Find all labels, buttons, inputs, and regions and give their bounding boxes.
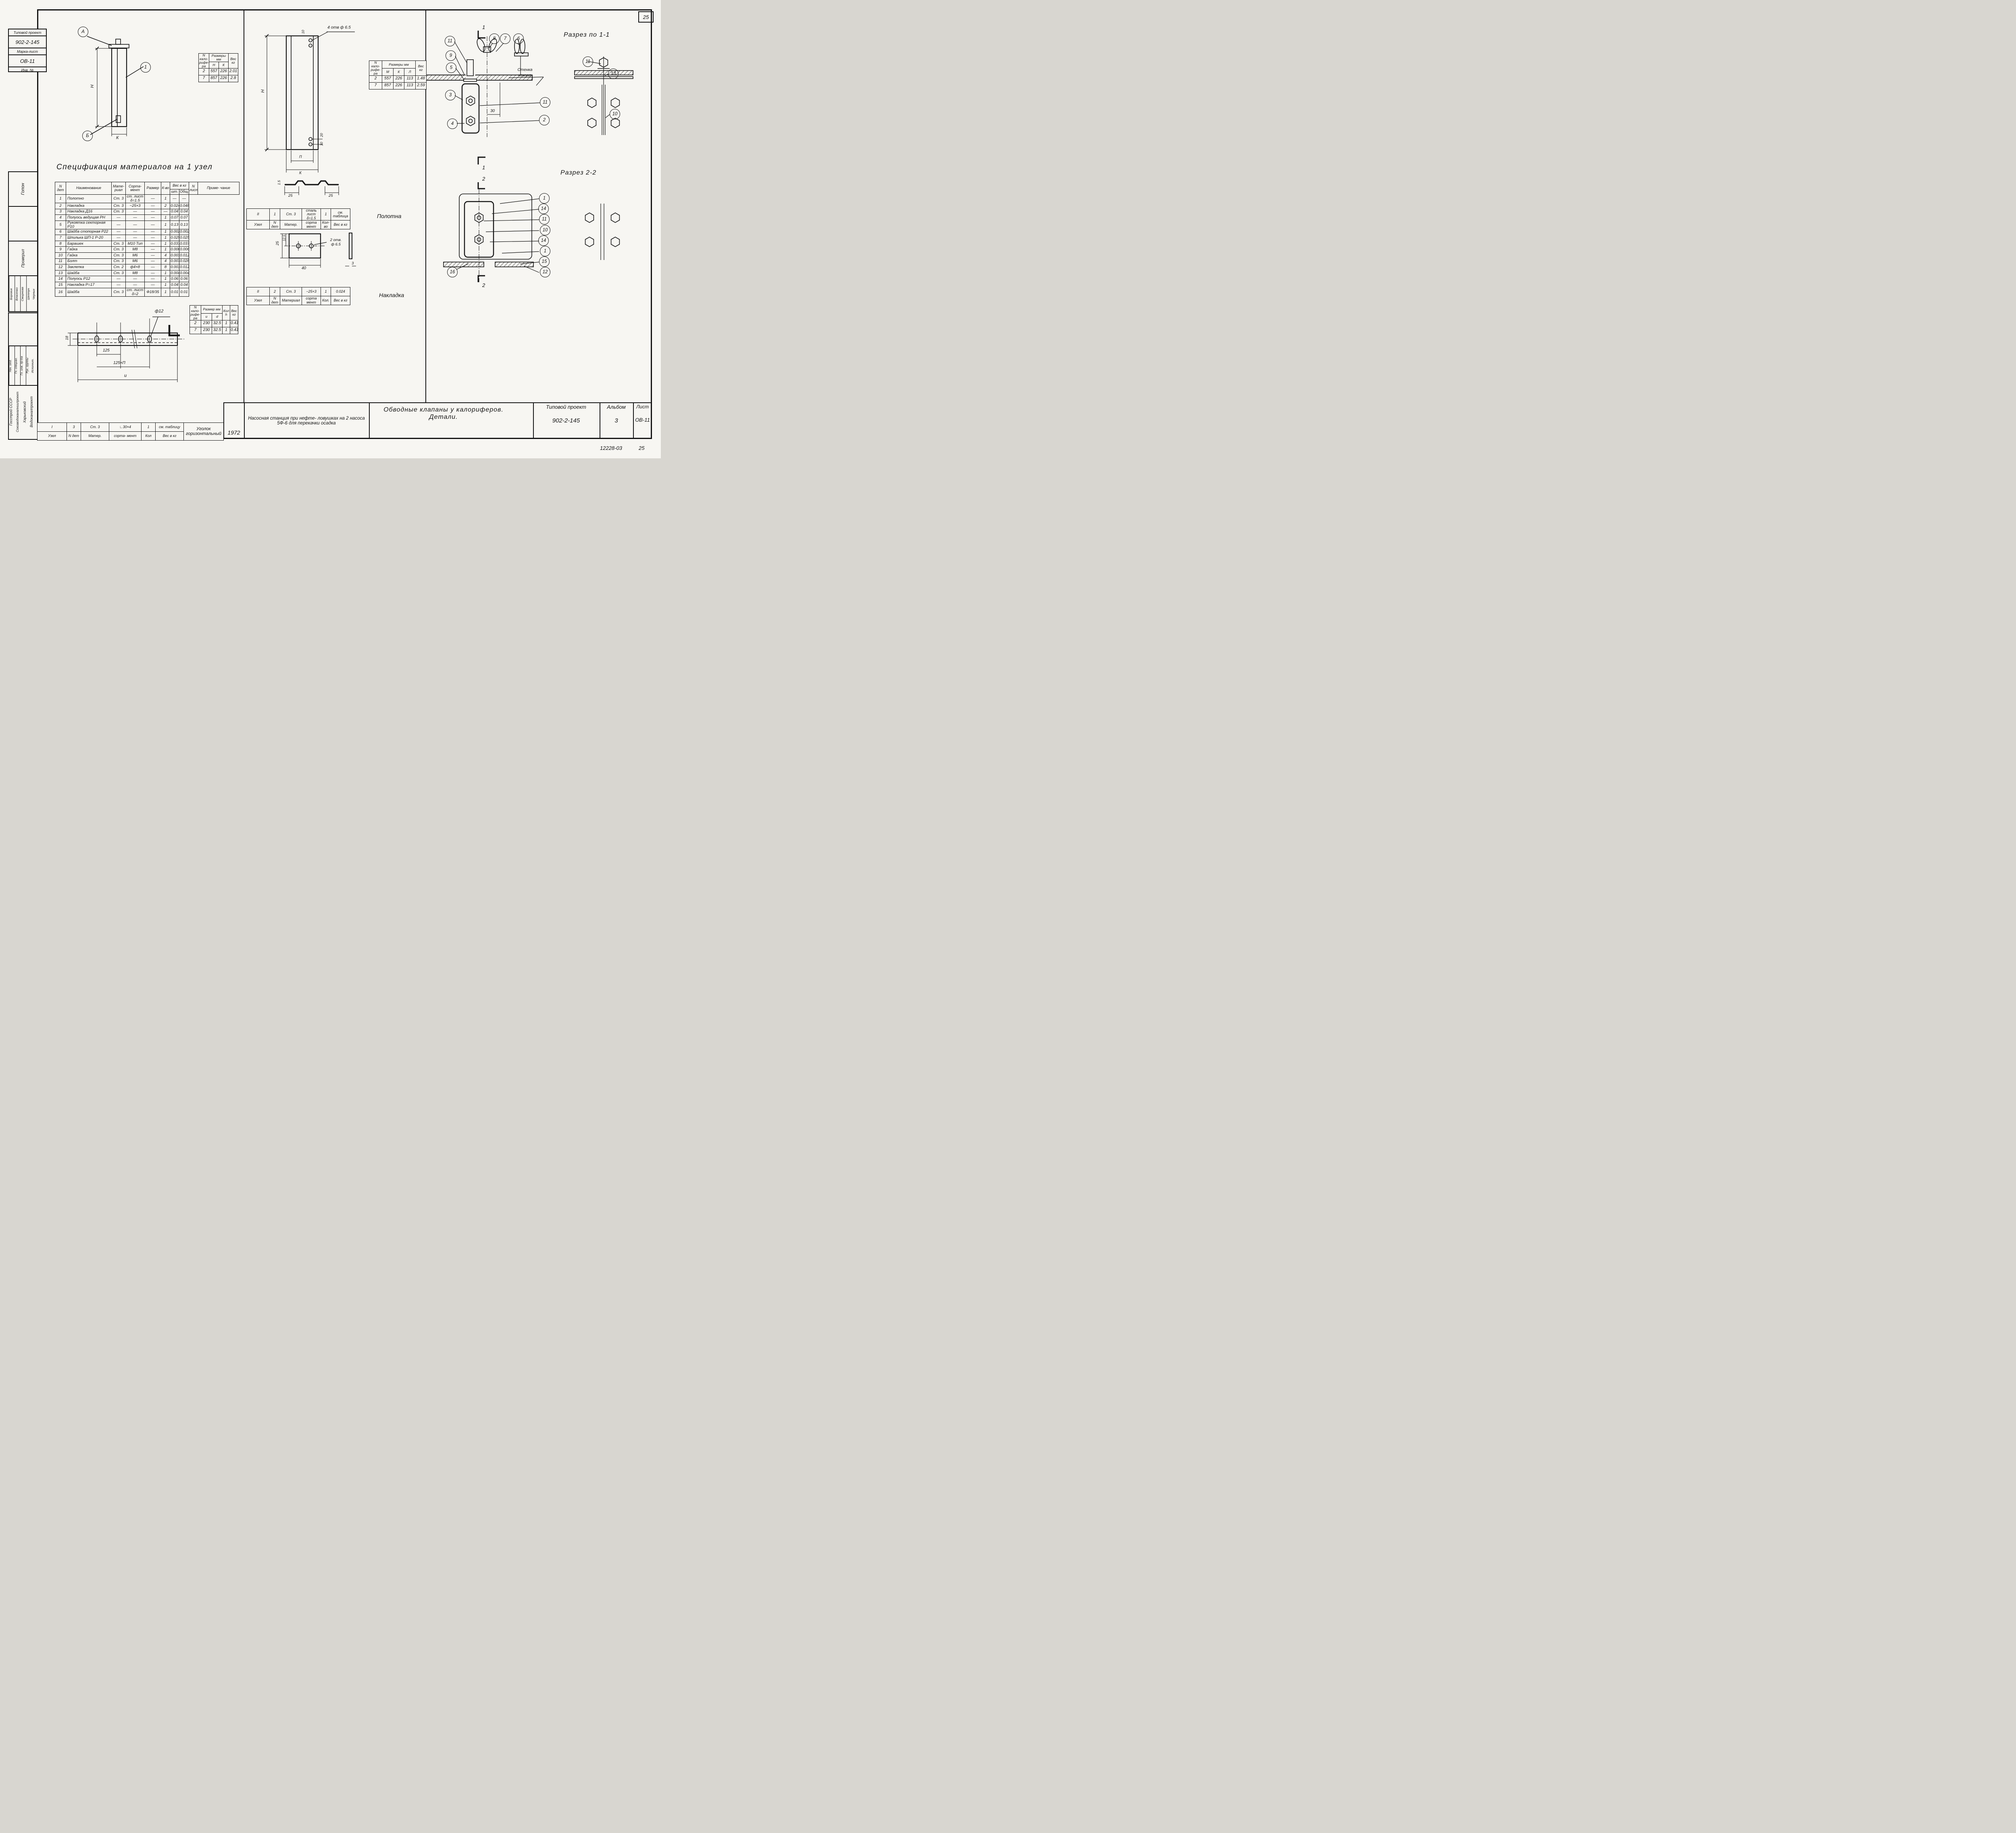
table-cell: N дет [270,296,280,305]
table-cell: 2 [270,287,280,296]
callout-s1b: 1 [540,246,550,256]
table-cell: 0.006 [170,247,179,253]
table-cell: Барашек [66,241,112,247]
checked-label: Проверил [21,249,25,268]
d3-holes-line1: 2 отв. [325,238,347,242]
wall-line1: Стенка [507,68,543,72]
table-cell: Ст. 3 [112,195,126,203]
table-cell: 857 [382,82,394,89]
tp-value: 902-2-145 [534,417,598,424]
ud-h-col: N кало- рифе- ра [190,306,201,320]
strip-nakladka: II2Ст. 3−25×310.024УзелN детМатериалсорт… [246,287,350,305]
signoff-name: Боровик [9,276,15,312]
table-cell: 15 [55,282,66,288]
table-cell: 4 [161,258,170,264]
table-cell: Вес в кг [331,221,350,229]
table-cell: 9 [55,247,66,253]
mkl-h-col: N кало- рифе- ра [369,61,382,76]
table-cell: Гайка [66,253,112,259]
ud-h-size: Размер мм [201,306,223,314]
signoff-name: Власенко [15,276,20,312]
table-cell: 0.41 [230,327,238,334]
table-cell: сталь лист δ=1.5 [302,209,321,221]
table-cell: Вес в кг [331,296,350,305]
ugolok-lab: Узел [37,432,67,441]
table-cell: Заклепка [66,264,112,270]
left-stamp-checked-cell: Проверил [9,241,37,276]
table-row: 10ГайкаСт. 3М6—40.0030.012 [55,253,240,259]
table-cell: 8 [161,264,170,270]
table-cell: Ст. 3 [112,270,126,276]
table-cell: 0.004 [170,270,179,276]
title-block-year: 1972 [224,403,244,438]
table-cell: Ст. 3 [112,247,126,253]
table-row: 11БолтСт. 3М6—40.0070.028 [55,258,240,264]
corner-stamp-row: ОВ-11 [9,55,46,67]
footer-page: 25 [639,445,644,451]
d2-profile-25a: 25 [288,193,293,198]
ugolok-val: 3 [67,423,81,432]
table-cell: 32.5 [212,320,223,327]
table-cell: Шайба [66,288,112,296]
callout-8: 8 [489,33,500,44]
corner-stamp-row: 902-2-145 [9,36,46,48]
mkl-c3: Л [404,69,416,75]
table-cell: 12 [55,264,66,270]
table-row: 4Полуось ведущая РН———10.070.07 [55,215,240,221]
table-cell: N дет [270,221,280,229]
ugolok-val: I [37,423,67,432]
table-cell: 0.04 [170,282,179,288]
table-cell: — [145,247,161,253]
callout-2: 2 [539,115,550,125]
spec-h-weight-total: Общ. [179,189,189,195]
table-cell: 226 [219,68,229,75]
ud-body: 223032.510.41723032.510.41 [190,320,238,334]
callout-1: 1 [140,62,151,73]
table-cell: Шайба [66,270,112,276]
table-row: УзелN детМатериалсорта ментКол.Вес в кг [247,296,350,305]
strip-nakladka-caption: Накладка [379,292,404,298]
table-cell: 226 [394,82,404,89]
org-line: Госстрой СССР [9,386,16,438]
table-cell: — [145,209,161,215]
table-cell: — [126,235,145,241]
page-number: 25 [643,14,649,20]
table-cell: 13 [55,270,66,276]
table-cell: сорта мент [302,221,321,229]
mkl-h-size: Размеры мм [382,61,416,69]
table-cell: — [126,276,145,282]
table-cell: Шпилька ШП-1 Р-20 [66,235,112,241]
table-cell: 226 [394,75,404,82]
table-cell: Ст. 3 [280,287,302,296]
callout-6: 6 [513,33,524,44]
table-cell: 230 [201,327,212,334]
table-row: 12ЗаклепкаСт. 2ф4×8—80.00150.012 [55,264,240,270]
table-cell: 0.037 [170,241,179,247]
signoff-name: Шептун [26,276,32,312]
mkl-body: 25572261131.4878572261132.59 [369,75,427,89]
table-cell: 2 [199,68,209,75]
table-row: 15Накладка Р=17———10.040.04 [55,282,240,288]
org-stamp-org-band: Госстрой СССР Союзводоканалниипроект Хар… [9,386,37,438]
callout-9: 9 [446,50,456,61]
table-cell: 0.024 [170,203,179,209]
table-cell: 1 [161,229,170,235]
table-cell: 0.012 [179,264,189,270]
table-cell: 16 [55,288,66,296]
table-cell: — [112,235,126,241]
sec11-title: Разрез по 1-1 [564,31,610,39]
table-cell: — [126,209,145,215]
album-label: Альбом [600,404,632,410]
table-cell: 11 [55,258,66,264]
spec-h-mat: Мате- риал [112,182,126,195]
table-cell: Гайка [66,247,112,253]
spec-h-name: Наименование [66,182,112,195]
d3-holes-label: 2 отв. ф 6.5 [325,238,347,247]
org-line: Водоканалпроект [29,386,36,438]
table-cell: 7 [55,235,66,241]
table-cell: Полуось Р12 [66,276,112,282]
d2-dim-p: П [299,155,302,159]
table-row: 78572261132.59 [369,82,427,89]
table-cell: 0.002 [170,229,179,235]
table-cell: 7 [190,327,201,334]
table-cell: 0.012 [179,253,189,259]
table-cell: Ст. 3 [112,209,126,215]
table-cell: — [145,264,161,270]
table-cell: 0.06 [170,276,179,282]
table-cell: 0.41 [230,320,238,327]
table-cell: 2 [190,320,201,327]
table-row: 7Шпилька ШП-1 Р-20———10.0250.025 [55,235,240,241]
strip-ugolok: I 3 Ст. 3 ∟30×4 1 см. таблицу Уголок гор… [37,422,224,441]
strip-polotna-caption: Полотна [377,213,401,219]
ugolok-lab: сорта- мент [109,432,142,441]
table-cell: 1.48 [416,75,427,82]
spec-h-sort: Сорта- мент [126,182,145,195]
table-cell: — [145,221,161,229]
table-row: УзелN детМатер.сорта ментКол-воВес в кг [247,221,350,229]
ugolok-val: 1 [142,423,156,432]
sheet-value: ОВ-11 [634,417,651,423]
callout-s14b: 14 [538,235,549,246]
table-cell: 7 [199,75,209,82]
title-block-tp: Типовой проект 902-2-145 [534,404,598,424]
footer-code: 12228-03 [600,445,622,451]
table-row: 223032.510.41 [190,320,238,327]
table-cell: — [112,215,126,221]
table-cell: 0.04 [179,209,189,215]
table-cell: Накладка Д16 [66,209,112,215]
table-cell: Ст. 2 [112,264,126,270]
table-row: 3Накладка Д16Ст. 3———0.040.04 [55,209,240,215]
table-row: 25572262.01 [199,68,238,75]
table-cell: 1 [161,276,170,282]
left-stamp-approver-cell: Гопон [9,172,37,207]
sec11-wall-label: Стенка кожуха [507,68,543,78]
ugolok-lab: Матер. [81,432,109,441]
role-label: Гл. специал. [15,346,20,385]
table-row: 5Рукоятка секторная Р10———10.130.13 [55,221,240,229]
table-cell: — [145,229,161,235]
spec-h-num: N дет [55,182,66,195]
left-stamp-signature-cell [9,207,37,241]
d2-holes-label: 4 отв ф 6.5 [327,25,351,30]
ugolok-lab: Вес в кг [156,432,184,441]
table-cell: 1 [55,195,66,203]
d2-dim-top10: 10 [301,30,305,33]
table-cell: — [126,229,145,235]
table-cell: 32.5 [212,327,223,334]
approver-name: Гопон [21,183,25,195]
table-ud: N кало- рифе- ра Размер мм Кол h Вес кг … [190,305,238,334]
table-cell: 0.006 [179,247,189,253]
table-cell: Кол-во [321,221,331,229]
spec-table: N дет Наименование Мате- риал Сорта- мен… [55,182,240,297]
table-cell: Шайба стопорная Р22 [66,229,112,235]
table-cell: см. таблица [331,209,350,221]
callout-4: 4 [447,119,458,129]
sheet-label: Лист [634,404,651,410]
sec11-mark-top: 1 [482,24,485,30]
d2-dim-20: 20 [320,133,324,137]
callout-10: 10 [610,109,620,119]
callout-s11: 11 [539,214,550,225]
table-cell: 113 [404,82,416,89]
d2-dim-10: 10 [320,142,324,146]
strip-polotna-body: II1Ст. 3сталь лист δ=1.51см. таблицаУзел… [247,209,350,229]
callout-5: 5 [446,62,456,73]
d6-dim-125: 125 [103,348,110,353]
d2-dim-h: Н [260,89,265,93]
corner-stamp-row: Инв. № [9,67,46,73]
table-cell: Ст. 3 [112,258,126,264]
title-block-album: Альбом 3 [600,404,632,424]
album-value: 3 [600,417,632,424]
hk-h-weight: Вес кг [229,54,238,69]
table-hk: N кало- рифе- ра Размеры мм Вес кг Н К 2… [198,53,238,82]
tb-sep [369,402,370,439]
d2-dim-k: К [299,171,302,175]
table-cell: 0.004 [179,270,189,276]
callout-s1a: 1 [539,193,550,204]
callout-16: 16 [447,267,458,277]
table-cell: 0.07 [179,215,189,221]
left-stamp-names-row: Боровик Власенко Смирнова Шептун Черных [9,276,37,312]
table-cell: — [126,282,145,288]
table-cell: 230 [201,320,212,327]
table-cell: 10 [55,253,66,259]
table-cell: — [145,282,161,288]
d6-dim-18: 18 [65,336,69,340]
d6-dim-u: и [124,373,127,378]
spec-h-sheet: N листа [189,182,198,195]
d3-dim-40: 40 [302,266,306,270]
sec22-title: Разрез 2-2 [560,169,596,177]
callout-s14a: 14 [538,204,549,214]
spec-h-qty: К-во [161,182,170,195]
ugolok-lab: N дет [67,432,81,441]
ugolok-val: см. таблицу [156,423,184,432]
table-cell: 1 [161,195,170,203]
mkl-c2: К [394,69,404,75]
table-cell: — [145,258,161,264]
table-cell: 0.002 [179,229,189,235]
table-cell: Полуось ведущая РН [66,215,112,221]
table-cell: Материал [280,296,302,305]
table-cell: 2.59 [416,82,427,89]
table-cell: Накладка Р=17 [66,282,112,288]
table-cell: −25×3 [126,203,145,209]
strip-polotna: II1Ст. 3сталь лист δ=1.51см. таблицаУзел… [246,208,350,229]
table-cell: Ст. 3 [112,288,126,296]
table-cell: 226 [219,75,229,82]
table-cell: 113 [404,75,416,82]
table-cell: 5 [55,221,66,229]
table-cell: 1 [161,215,170,221]
mkl-h-weight: Вес кг [416,61,427,76]
table-cell: 4 [55,215,66,221]
spec-h-weight: Вес в кг [170,182,189,189]
left-org-stamp: Нач. отд. Гл. специал. Гл. инж. пр-та Ру… [8,312,38,440]
table-cell: 0.048 [179,203,189,209]
table-cell: 0.0015 [170,264,179,270]
table-cell: 2 [161,203,170,209]
callout-11b: 11 [540,97,550,108]
table-row: 9ГайкаСт. 3М8—10.0060.006 [55,247,240,253]
org-stamp-roles-band: Нач. отд. Гл. специал. Гл. инж. пр-та Ру… [9,346,37,386]
callout-s12: 12 [540,267,550,277]
spec-h-weight-each: шт. [170,189,179,195]
ud-h-weight: Вес кг [230,306,238,320]
table-cell: Ст. 3 [280,209,302,221]
table-cell: 1 [161,282,170,288]
d6-dim-125n: 125×П [113,361,125,365]
d1-dim-k: К [116,135,119,140]
table-cell: М8 [126,247,145,253]
table-cell: 3 [55,209,66,215]
d2-profile-25b: 25 [329,193,333,198]
table-cell: Узел [247,221,270,229]
corner-stamp-row: Типовой проект [9,29,46,36]
table-cell: Кол. [321,296,331,305]
table-cell: Полотно [66,195,112,203]
table-row: 6Шайба стопорная Р22———10.0020.002 [55,229,240,235]
table-cell: — [145,241,161,247]
strip-nakladka-body: II2Ст. 3−25×310.024УзелN детМатериалсорт… [247,287,350,305]
table-row: II1Ст. 3сталь лист δ=1.51см. таблица [247,209,350,221]
table-row: 2НакладкаСт. 3−25×3—20.0240.048 [55,203,240,209]
spec-h-size: Размер [145,182,161,195]
table-cell: Ст. 3 [112,241,126,247]
table-row: 13ШайбаСт. 3М8—10.0040.004 [55,270,240,276]
hk-c1: Н [209,62,219,69]
hk-c2: К [219,62,229,69]
d2-profile-15: 1.5 [277,180,281,185]
table-cell: 1 [161,241,170,247]
table-cell: — [145,276,161,282]
table-row: 723032.510.41 [190,327,238,334]
table-cell: — [145,203,161,209]
table-cell: 1 [161,221,170,229]
table-cell: — [170,195,179,203]
table-cell: 4 [161,253,170,259]
d3-dim-25: 25 [275,241,280,246]
table-cell: 0.13 [170,221,179,229]
table-cell: — [145,235,161,241]
table-cell: 1 [223,320,230,327]
table-cell: 14 [55,276,66,282]
table-cell: 1 [161,247,170,253]
callout-a: А [78,27,88,37]
callout-7: 7 [500,33,510,44]
table-cell: 6 [55,229,66,235]
table-cell: Матер. [280,221,302,229]
column-divider-1 [244,9,244,402]
table-cell: 2 [55,203,66,209]
table-row: II2Ст. 3−25×310.024 [247,287,350,296]
table-row: 25572261131.48 [369,75,427,82]
d6-dia-12: ф12 [155,309,163,314]
ud-h-qty: Кол h [223,306,230,320]
ugolok-val: ∟30×4 [109,423,142,432]
corner-stamp-row: Марка-лист [9,48,46,55]
table-cell: М10 Тип [126,241,145,247]
hk-h-size: Размеры мм [209,54,229,62]
table-cell: 1 [321,287,331,296]
table-cell: 857 [209,75,219,82]
title-block-top-line [223,402,651,403]
table-cell: — [179,195,189,203]
role-label: Нач. отд. [9,346,15,385]
table-cell: 1 [161,235,170,241]
callout-b: Б [82,131,93,141]
table-cell: 0.025 [179,235,189,241]
sec22-mark-top: 2 [482,176,485,182]
table-cell: −25×3 [302,287,321,296]
table-cell: 0.007 [170,258,179,264]
table-cell: Накладка [66,203,112,209]
table-cell: II [247,209,270,221]
d3-dim-125: 12.5 [282,235,286,241]
table-cell: — [112,276,126,282]
callout-3: 3 [445,90,456,100]
title-block-project: Насосная станция при нефте- ловушках на … [246,405,367,437]
table-cell: 0.028 [179,258,189,264]
ugolok-caption: Уголок горизонтальный [184,423,224,441]
spec-table-body: 1ПолотноСт. 3ст. лист δ=1.5—1——2Накладка… [55,195,240,297]
table-cell: 0.04 [170,209,179,215]
drawing-sheet: 25 Типовой проект 902-2-145 Марка-лист О… [0,0,661,458]
table-cell: 0.037 [179,241,189,247]
table-cell: 0.13 [179,221,189,229]
table-cell: — [145,215,161,221]
table-cell: М8 [126,270,145,276]
table-cell: — [126,215,145,221]
sec22-mark-bot: 2 [482,282,485,288]
signoff-name: Смирнова [20,276,26,312]
d3-dim-3: 3 [352,261,354,266]
table-cell: — [112,282,126,288]
table-cell: 0.025 [170,235,179,241]
spec-title: Спецификация материалов на 1 узел [56,163,212,172]
table-cell: ст. лист δ=1.5 [126,195,145,203]
role-label: Рук. группы [26,346,31,385]
table-cell: — [145,253,161,259]
